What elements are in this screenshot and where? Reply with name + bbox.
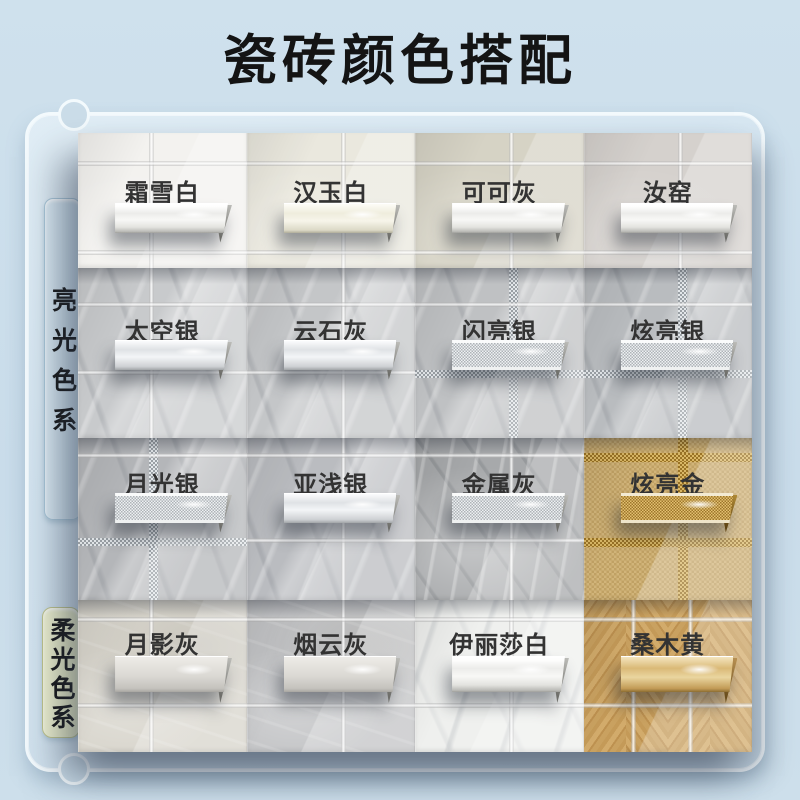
trim-highlight [175, 347, 213, 357]
tile-swatch: 炫亮金 [584, 438, 753, 600]
series-label-glossy: 亮光色系 [44, 198, 81, 520]
frame-corner-ornament [58, 99, 90, 131]
trim-highlight [343, 664, 381, 676]
grout-line-horizontal [78, 250, 247, 255]
trim-highlight [680, 347, 718, 357]
grout-line-horizontal [78, 302, 247, 307]
trim-strip [284, 493, 397, 523]
trim-highlight [680, 210, 718, 220]
tile-row-4: 月影灰 烟云灰 伊丽莎白 [78, 600, 752, 752]
tile-color-poster: { "page": { "title": "瓷砖颜色搭配", "backgrou… [0, 0, 800, 800]
grout-line-horizontal [78, 703, 247, 708]
tile-grid: 霜雪白 汉玉白 可可灰 [78, 133, 752, 752]
page-title: 瓷砖颜色搭配 [0, 16, 800, 95]
tile-swatch: 汉玉白 [247, 133, 416, 268]
grout-line-horizontal [415, 703, 584, 708]
grout-line-horizontal [415, 250, 584, 255]
grout-line-horizontal [415, 161, 584, 166]
tile-swatch: 金属灰 [415, 438, 584, 600]
tile-row-3: 月光银 亚浅银 金属灰 [78, 438, 752, 600]
grout-line-horizontal [247, 302, 416, 307]
grout-line-horizontal [415, 302, 584, 307]
series-label-glossy-text: 亮光色系 [45, 287, 81, 447]
trim-highlight [175, 210, 213, 220]
trim-strip [452, 203, 565, 233]
trim-strip [621, 656, 734, 692]
trim-strip [621, 340, 734, 370]
tile-swatch: 月影灰 [78, 600, 247, 752]
tile-swatch: 桑木黄 [584, 600, 753, 752]
trim-strip [452, 656, 565, 692]
tile-swatch: 炫亮银 [584, 268, 753, 438]
trim-strip [284, 656, 397, 692]
grout-line-horizontal [584, 302, 753, 307]
frame-corner-ornament [58, 753, 90, 785]
trim-strip [115, 493, 228, 523]
tile-name-label: 月影灰 [78, 625, 247, 660]
grout-line-horizontal [247, 161, 416, 166]
trim-strip [284, 340, 397, 370]
grout-line-horizontal [584, 161, 753, 166]
tile-name-label: 桑木黄 [584, 625, 753, 660]
grout-line-horizontal [247, 250, 416, 255]
tile-swatch: 闪亮银 [415, 268, 584, 438]
grout-line-horizontal [584, 617, 753, 622]
trim-strip [115, 340, 228, 370]
grout-line-horizontal [247, 703, 416, 708]
series-label-soft-text: 柔光色系 [43, 617, 79, 733]
series-label-soft: 柔光色系 [42, 607, 80, 738]
grout-line-horizontal [584, 703, 753, 708]
tile-name-label: 烟云灰 [247, 625, 416, 660]
tile-swatch: 亚浅银 [247, 438, 416, 600]
tile-swatch: 烟云灰 [247, 600, 416, 752]
grout-line-horizontal [78, 538, 247, 546]
tile-swatch: 月光银 [78, 438, 247, 600]
grout-line-horizontal [584, 538, 753, 547]
tile-swatch: 太空银 [78, 268, 247, 438]
trim-highlight [343, 500, 381, 510]
trim-strip [115, 656, 228, 692]
grout-line-horizontal [247, 617, 416, 622]
tile-swatch: 云石灰 [247, 268, 416, 438]
trim-strip [621, 493, 734, 523]
grout-line-horizontal [584, 250, 753, 255]
trim-highlight [175, 664, 213, 676]
tile-row-1: 霜雪白 汉玉白 可可灰 [78, 133, 752, 268]
trim-strip [621, 203, 734, 233]
trim-highlight [680, 664, 718, 676]
grout-line-horizontal [78, 453, 247, 458]
trim-highlight [512, 664, 550, 676]
tile-swatch: 伊丽莎白 [415, 600, 584, 752]
grout-line-horizontal [78, 161, 247, 166]
trim-highlight [175, 500, 213, 510]
grout-line-horizontal [415, 617, 584, 622]
grout-line-horizontal [247, 453, 416, 458]
tile-swatch: 可可灰 [415, 133, 584, 268]
trim-highlight [512, 347, 550, 357]
trim-strip [284, 203, 397, 233]
trim-highlight [343, 347, 381, 357]
trim-strip [452, 493, 565, 523]
grout-line-horizontal [584, 453, 753, 462]
trim-strip [452, 340, 565, 370]
tile-row-2: 太空银 云石灰 闪亮银 [78, 268, 752, 438]
grout-line-horizontal [415, 538, 584, 543]
tile-name-label: 伊丽莎白 [415, 625, 584, 660]
tile-swatch: 霜雪白 [78, 133, 247, 268]
trim-highlight [512, 500, 550, 510]
grout-line-horizontal [247, 538, 416, 543]
grout-line-horizontal [78, 617, 247, 622]
tile-swatch: 汝窑 [584, 133, 753, 268]
trim-highlight [680, 500, 718, 510]
grout-line-horizontal [415, 453, 584, 458]
trim-strip [115, 203, 228, 233]
trim-highlight [512, 210, 550, 220]
trim-highlight [343, 210, 381, 220]
